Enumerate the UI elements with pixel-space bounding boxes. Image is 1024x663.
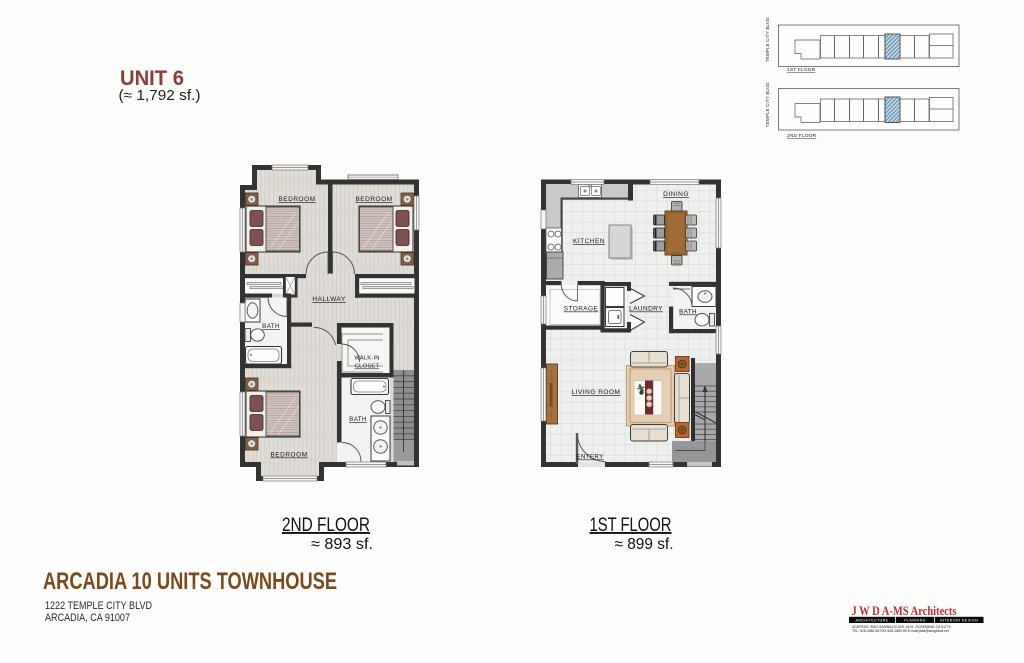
svg-text:(≈ 1,792 sf.): (≈ 1,792 sf.) [119,88,201,104]
svg-text:KITCHEN: KITCHEN [573,238,605,245]
svg-text:≈ 899 sf.: ≈ 899 sf. [615,536,674,553]
svg-text:TEL: 626-2880-88 FAX:626-2880: TEL: 626-2880-88 FAX:626-2880-89 E-mail:… [852,629,949,633]
svg-text:1ST FLOOR: 1ST FLOOR [590,515,672,536]
svg-text:WALK-IN: WALK-IN [354,356,379,362]
svg-text:J W D A-MS Architects: J W D A-MS Architects [852,604,957,618]
svg-text:BATH: BATH [262,323,280,330]
svg-text:CLOSET: CLOSET [355,364,380,370]
svg-text:1ST FLOOR: 1ST FLOOR [787,67,816,73]
svg-text:2ND FLOOR: 2ND FLOOR [787,133,817,139]
svg-text:LAUNDRY: LAUNDRY [629,306,663,313]
svg-text:STORAGE: STORAGE [564,306,599,313]
svg-text:≈ 893 sf.: ≈ 893 sf. [311,536,373,553]
svg-text:2ND FLOOR: 2ND FLOOR [282,515,370,536]
svg-text:1222 TEMPLE CITY BLVD: 1222 TEMPLE CITY BLVD [45,600,152,612]
svg-text:INTERIOR DESIGN: INTERIOR DESIGN [940,619,978,623]
svg-text:PLANNING: PLANNING [904,619,926,623]
svg-text:LIVING ROOM: LIVING ROOM [572,389,621,396]
svg-text:ARCADIA, CA 91007: ARCADIA, CA 91007 [45,612,130,624]
svg-text:BEDROOM: BEDROOM [355,196,392,203]
svg-text:BATH: BATH [679,309,697,316]
svg-text:DINING: DINING [663,191,689,198]
svg-text:UNIT 6: UNIT 6 [120,66,184,90]
svg-text:HALLWAY: HALLWAY [312,296,346,303]
svg-text:BATH: BATH [349,416,367,423]
svg-text:BEDROOM: BEDROOM [278,196,315,203]
svg-text:BEDROOM: BEDROOM [270,452,307,459]
svg-text:ARCADIA 10 UNITS TOWNHOUSE: ARCADIA 10 UNITS TOWNHOUSE [43,568,337,595]
svg-text:TEMPLE CITY BLVD.: TEMPLE CITY BLVD. [765,81,770,127]
svg-text:ARCHITECTURE: ARCHITECTURE [856,619,889,623]
svg-text:TEMPLE CITY BLVD.: TEMPLE CITY BLVD. [765,16,770,62]
svg-text:ENTERY: ENTERY [576,454,603,461]
